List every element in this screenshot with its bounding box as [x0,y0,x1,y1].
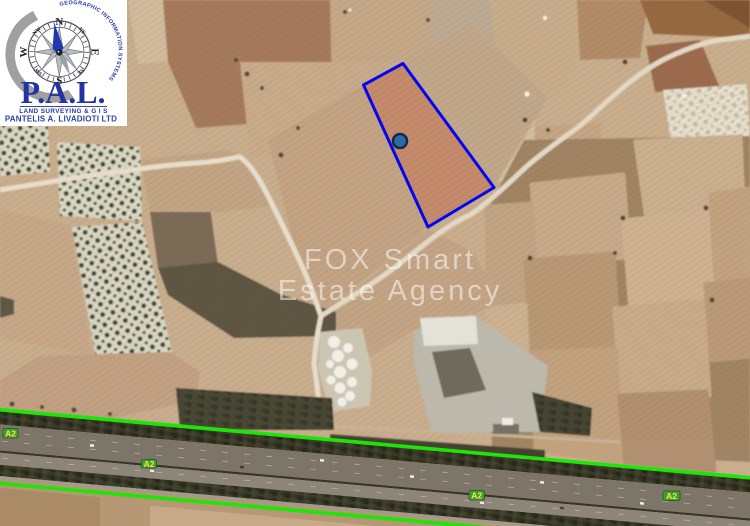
svg-text:A2: A2 [666,491,677,501]
svg-text:PANTELIS A. LIVADIOTI LTD: PANTELIS A. LIVADIOTI LTD [5,115,117,124]
svg-text:Estate Agency: Estate Agency [278,275,502,307]
svg-text:A2: A2 [144,459,155,469]
svg-text:W: W [18,47,30,58]
svg-text:E: E [89,48,101,55]
svg-text:A2: A2 [5,428,16,438]
svg-text:A2: A2 [471,490,482,500]
svg-text:FOX Smart: FOX Smart [304,244,476,276]
svg-text:P.A.L.: P.A.L. [20,74,105,110]
svg-text:N: N [55,16,63,28]
